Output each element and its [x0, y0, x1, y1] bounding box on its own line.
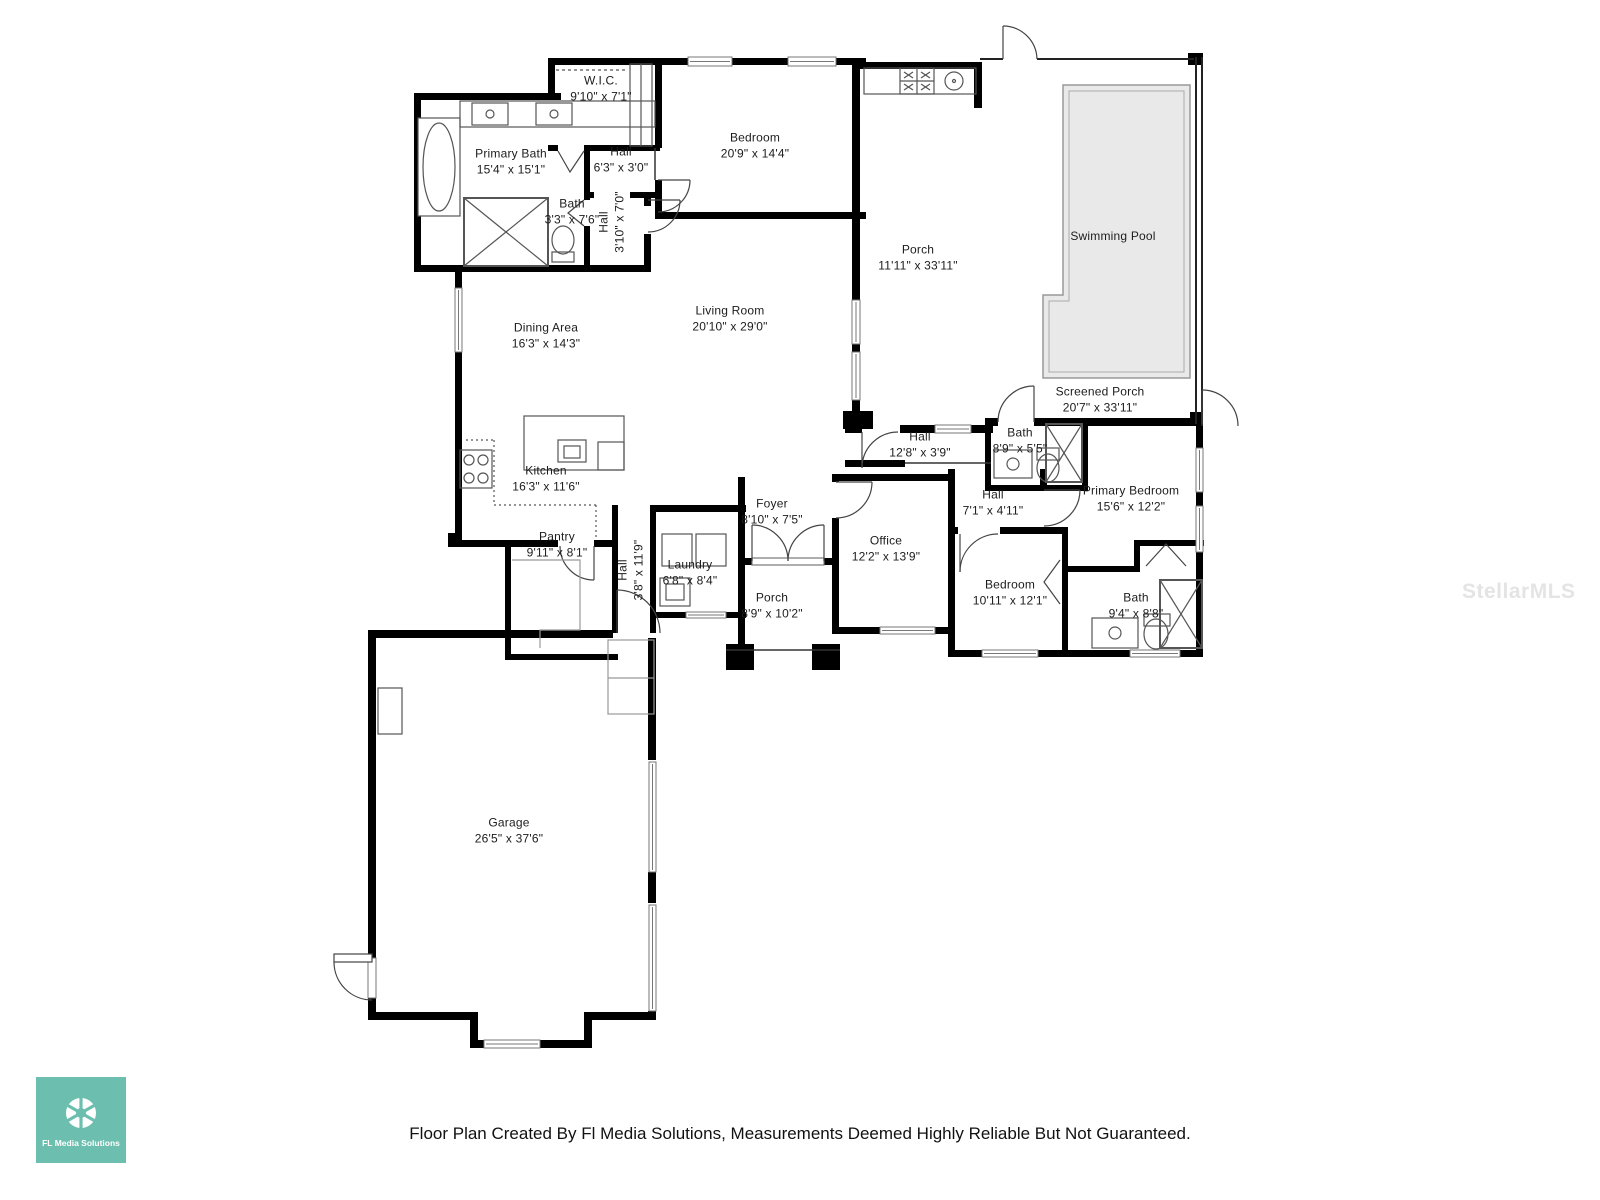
room-label-screened-porch: Screened Porch20'7" x 33'11": [1056, 384, 1145, 415]
floor-plan: W.I.C.9'10" x 7'1" Primary Bath15'4" x 1…: [0, 0, 1600, 1200]
room-label-pantry: Pantry9'11" x 8'1": [527, 529, 588, 560]
room-label-dining-area: Dining Area16'3" x 14'3": [512, 320, 580, 351]
room-label-garage: Garage26'5" x 37'6": [475, 815, 543, 846]
room-label-porch-1: Porch11'11" x 33'11": [878, 242, 958, 273]
room-label-bath-2: Bath8'9" x 5'5": [993, 425, 1048, 456]
room-label-bedroom-1: Bedroom20'9" x 14'4": [721, 130, 789, 161]
room-label-hall-2: Hall3'10" x 7'0": [596, 191, 627, 253]
room-label-hall-4: Hall12'8" x 3'9": [889, 429, 951, 460]
room-label-living-room: Living Room20'10" x 29'0": [692, 303, 767, 334]
disclaimer-text: Floor Plan Created By Fl Media Solutions…: [0, 1124, 1600, 1144]
fl-media-solutions-logo: FL Media Solutions: [36, 1077, 126, 1163]
stellar-mls-watermark: StellarMLS: [1462, 580, 1576, 604]
room-label-hall-1: Hall6'3" x 3'0": [594, 144, 649, 175]
room-label-swimming-pool: Swimming Pool: [1070, 229, 1155, 245]
room-label-laundry: Laundry6'8" x 8'4": [663, 557, 718, 588]
room-label-wic: W.I.C.9'10" x 7'1": [570, 73, 632, 104]
room-label-kitchen: Kitchen16'3" x 11'6": [512, 463, 580, 494]
room-label-bedroom-2: Bedroom10'11" x 12'1": [973, 577, 1047, 608]
room-label-primary-bath: Primary Bath15'4" x 15'1": [475, 146, 547, 177]
room-label-primary-bedroom: Primary Bedroom15'6" x 12'2": [1083, 483, 1179, 514]
room-label-porch-2: Porch8'9" x 10'2": [741, 590, 803, 621]
room-label-foyer: Foyer8'10" x 7'5": [741, 496, 803, 527]
room-label-hall-3: Hall3'8" x 11'9": [615, 540, 646, 601]
room-label-bath-1: Bath3'3" x 7'6": [545, 196, 600, 227]
room-label-bath-3: Bath9'4" x 8'8": [1109, 590, 1164, 621]
room-label-office: Office12'2" x 13'9": [852, 533, 920, 564]
room-label-hall-5: Hall7'1" x 4'11": [963, 487, 1024, 518]
